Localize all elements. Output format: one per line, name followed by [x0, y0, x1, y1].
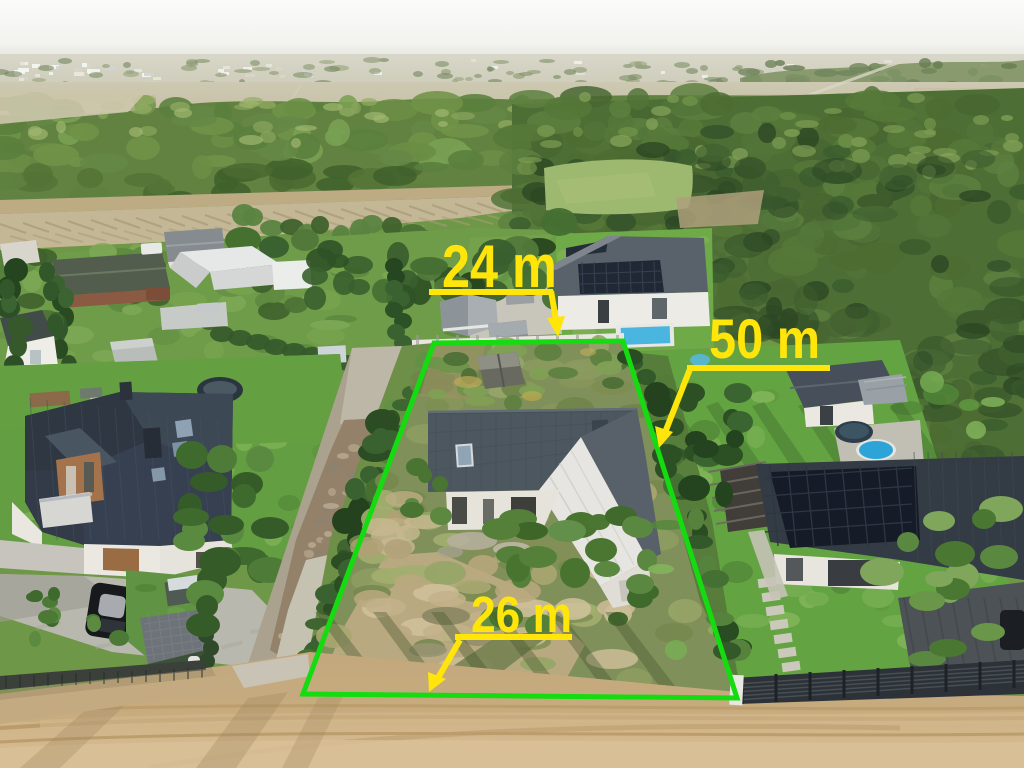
svg-text:50 m: 50 m: [709, 308, 820, 371]
